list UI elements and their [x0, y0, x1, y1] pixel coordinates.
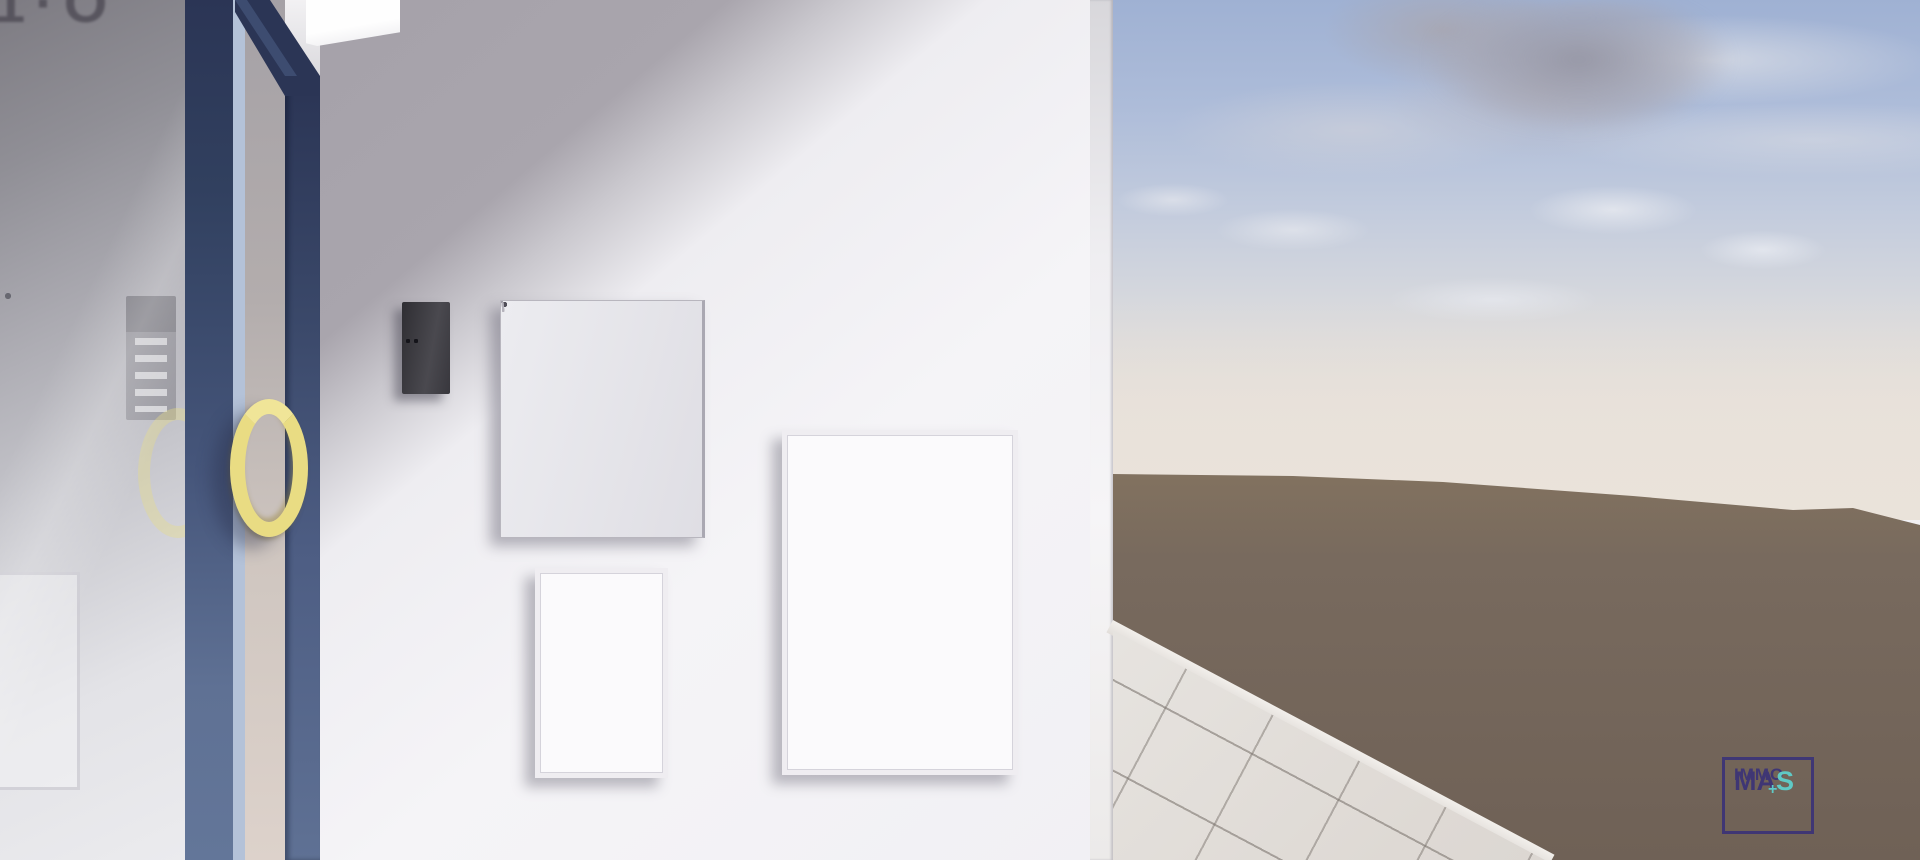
reflected-mailbox-door — [4, 292, 6, 294]
reflected-mailbox-door — [4, 292, 6, 294]
reflected-intercom — [126, 296, 176, 420]
entrance-render: 1·O IMMO MAS + — [0, 0, 1920, 860]
logo-line2: MAS + — [1734, 768, 1794, 795]
entrance-door-glass: 1·O — [0, 0, 185, 860]
mailbox-door — [501, 301, 503, 303]
reflected-poster-frame — [0, 572, 80, 790]
intercom-label-strips — [412, 338, 440, 389]
reflected-mailbox-column — [4, 292, 116, 588]
mailbox-unit mailbox-grid — [500, 300, 705, 538]
door-handle-ring — [230, 399, 308, 537]
reflected-handle-ring — [138, 408, 185, 538]
logo-plus-icon: + — [1768, 782, 1777, 798]
poster-frame-small — [535, 568, 668, 778]
door-frame-header — [185, 0, 325, 112]
reflected-mailbox-door — [4, 292, 6, 294]
immo-mas-logo: IMMO MAS + — [1722, 757, 1814, 834]
glass-sign-partial-text: 1·O — [0, 0, 117, 35]
building-corner-edge — [1090, 0, 1113, 860]
reflected-mailbox-door — [4, 292, 6, 294]
cloud-large — [1430, 0, 1760, 170]
reflected-mailbox-door — [4, 292, 6, 294]
poster-frame-large — [782, 430, 1018, 775]
logo-line2-accent: S — [1776, 766, 1794, 796]
intercom-panel — [402, 302, 450, 394]
